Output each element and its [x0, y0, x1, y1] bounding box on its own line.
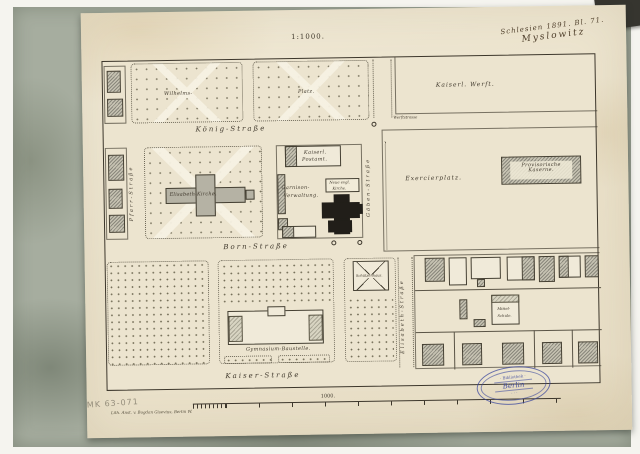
building	[422, 344, 444, 366]
block-top-left	[104, 66, 127, 124]
postamt-wing	[285, 146, 297, 167]
garnison-label-1: Garnison-	[281, 186, 309, 191]
schuetzenhaus-building: Schützenhaus.	[353, 261, 389, 292]
postamt-block: Kaiserl. Postamt. Garnison- Verwaltung. …	[276, 144, 363, 239]
urban-block-east: Mittel- Schule.	[414, 252, 602, 369]
street-lamp	[331, 240, 336, 245]
gymnasium-block: Gymnasium-Baustelle.	[218, 258, 336, 364]
wilhelmsplatz-label-west: Wilhelms-	[164, 92, 193, 97]
pencil-inventory-code: MK 63-071	[87, 397, 140, 410]
orchard-fill	[347, 296, 394, 359]
wilhelmsplatz-west: Wilhelms-	[130, 62, 243, 124]
mittelschule-label-2: Schule.	[497, 315, 511, 319]
plot-line	[534, 330, 536, 368]
lithographer-imprint: Lith. Anst. v. Bogdan Gisevius, Berlin W…	[111, 410, 192, 416]
building-wing	[559, 256, 569, 278]
koenig-strasse-label: König-Straße	[195, 125, 266, 133]
church-choir	[328, 220, 352, 232]
born-strasse-label: Born-Straße	[223, 243, 289, 251]
wilhelmsplatz-label-east: Platz.	[298, 90, 315, 95]
block-mid-left	[105, 148, 128, 240]
building	[449, 257, 467, 285]
neue-kirche-building	[322, 194, 365, 239]
postamt-label-1: Kaiserl.	[304, 150, 327, 155]
building	[542, 342, 562, 364]
exercierplatz-label: Exercierplatz.	[405, 175, 462, 182]
building	[507, 256, 535, 280]
tree-row	[390, 59, 392, 117]
elisabeth-kirche-label: Elisabeth-Kirche.	[170, 192, 217, 198]
postamt-building: Kaiserl. Postamt.	[285, 145, 341, 167]
building-wing	[282, 226, 294, 238]
garnison-label-2: Verwaltung.	[284, 194, 319, 200]
scale-bar-label: 1000.	[321, 394, 335, 399]
plot-line	[415, 287, 601, 291]
building-wing	[522, 256, 535, 280]
neue-kirche-note-1: Neue evgl.	[329, 181, 350, 185]
plot-line	[454, 331, 456, 369]
church-porch	[358, 204, 363, 214]
building	[108, 189, 122, 209]
kaiserl-werft-label: Kaiserl. Werft.	[436, 82, 495, 89]
postamt-label-2: Postamt.	[302, 157, 327, 162]
church-park: Elisabeth-Kirche.	[144, 145, 263, 239]
tree-row	[372, 60, 374, 118]
neue-kirche-note-2: Kirche.	[332, 187, 346, 191]
building	[282, 226, 316, 239]
schuetzenhaus-label: Schützenhaus.	[356, 274, 383, 278]
wilhelmsplatz-east: Platz.	[252, 60, 369, 122]
werftstrasse-label: Werftstrasse	[393, 116, 417, 120]
garden-strip	[224, 355, 272, 364]
building	[462, 343, 482, 365]
pfarr-strasse-label: Pfarr-Straße	[129, 165, 135, 221]
plot-line	[416, 329, 602, 333]
building	[539, 256, 555, 282]
building	[477, 279, 485, 287]
stamp-bottom-text: · · ·	[511, 391, 518, 396]
neue-kirche-note-box: Neue evgl. Kirche.	[325, 178, 359, 193]
orchard-fill	[221, 261, 332, 307]
building-wing	[228, 316, 242, 342]
exercierplatz-block: Exercierplatz. Provisorische Kaserne.	[382, 126, 600, 251]
building-projection	[267, 306, 285, 316]
mittelschule-label-1: Mittel-	[497, 308, 510, 312]
building	[471, 257, 501, 279]
archive-handwriting: Schlesien 1891. Bl. 71. Myslowitz	[472, 12, 633, 50]
building	[585, 255, 599, 277]
building-wing	[308, 315, 322, 341]
church-transept	[322, 202, 360, 219]
elisabeth-kirche-apse	[245, 190, 254, 200]
werft-block: Kaiserl. Werft.	[394, 54, 597, 114]
building	[578, 341, 598, 363]
building	[108, 155, 124, 181]
gymnasium-baustelle-label: Gymnasium-Baustelle.	[246, 347, 311, 353]
map-frame: Wilhelms- Platz. Kaiserl. Werft. Werftst…	[101, 53, 600, 391]
building	[459, 299, 467, 319]
scale-heading: 1:1000.	[291, 33, 325, 41]
building	[474, 319, 486, 327]
street-lamp	[371, 122, 376, 127]
building	[425, 258, 445, 282]
scale-bar-subdivision	[193, 404, 227, 409]
kaiser-strasse-label: Kaiser-Straße	[225, 372, 300, 380]
kaserne-label-2: Kaserne.	[510, 168, 572, 174]
mittelschule-building: Mittel- Schule.	[491, 294, 519, 324]
elisabeth-strasse-label: Elisabeth-Straße	[400, 279, 406, 354]
building	[502, 342, 524, 364]
scan-page: { "annotations": { "archive_series": "Sc…	[0, 0, 640, 454]
garden-strip	[278, 354, 330, 363]
kaserne-building: Provisorische Kaserne.	[501, 155, 581, 184]
building	[559, 255, 581, 277]
orchard-block-west	[107, 260, 211, 366]
building	[107, 99, 123, 117]
street-lamp	[357, 240, 362, 245]
goeben-strasse-label: Göben-Straße	[366, 158, 372, 217]
schuetzenhaus-block: Schützenhaus.	[344, 257, 398, 362]
map-sheet: 1:1000. Schlesien 1891. Bl. 71. Myslowit…	[81, 5, 633, 439]
building	[109, 215, 125, 233]
building-wing	[491, 294, 519, 302]
gymnasium-baustelle-building	[227, 310, 324, 346]
plot-line	[572, 330, 574, 368]
building	[107, 71, 121, 93]
